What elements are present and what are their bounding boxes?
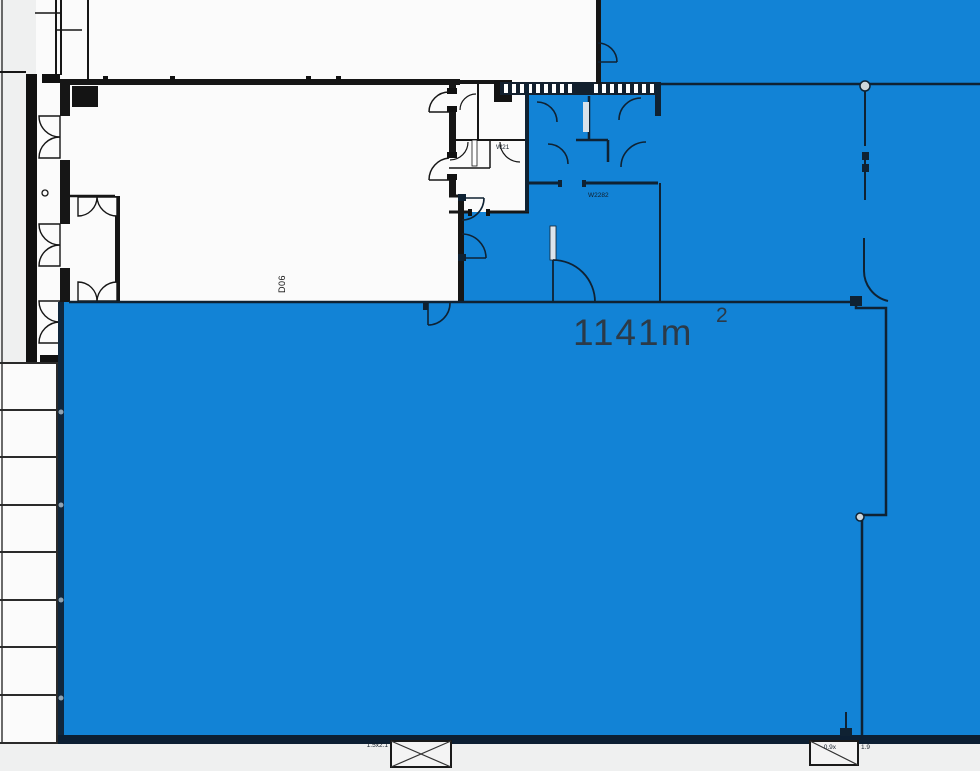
wc-code-blue: W2282 (588, 192, 609, 199)
door-label: D06 (277, 275, 287, 293)
wall-dot (59, 598, 64, 603)
corridor-heavy-wall (26, 74, 37, 363)
wall-marker-circle (860, 81, 870, 91)
boundary-marker-dot (856, 513, 864, 521)
wc-white-block (449, 82, 527, 212)
corridor-top-blob (42, 74, 60, 83)
blue-left-wall (58, 302, 64, 735)
wc-divider-wall (525, 84, 529, 212)
main-left-wall (60, 82, 70, 302)
corridor-marker-dot (42, 190, 48, 196)
main-top-wall (60, 79, 460, 85)
wall-dot (59, 696, 64, 701)
corridor-double-doors (39, 116, 60, 343)
wc-block-right-wall (655, 82, 661, 116)
window-label-left: 1.5x2.1 (367, 742, 389, 749)
partition-break (861, 146, 870, 152)
upper-block-right-wall (596, 0, 601, 84)
wc-blue-door-leaf (583, 102, 589, 132)
corner-shaft-block (72, 86, 98, 107)
wc-door-leaf (472, 140, 477, 166)
wall-dot (59, 410, 64, 415)
floor-plan-viewer: W21 W2282 1.5x2.1 0.9x (0, 0, 980, 771)
hall-door-leaf (550, 226, 556, 260)
wc-code-white: W21 (496, 144, 510, 151)
wall-dot (59, 503, 64, 508)
boundary-hinge-blob (850, 296, 862, 306)
floor-plan-svg: W21 W2282 1.5x2.1 0.9x (0, 0, 980, 771)
window-label-right-b: 1.9 (861, 744, 870, 751)
area-label-exponent: 2 (716, 304, 728, 327)
window-label-right-a: 0.9x (824, 744, 837, 751)
window-right-blob (840, 728, 852, 736)
area-label: 1141m (573, 312, 693, 353)
upper-white-block (60, 0, 598, 82)
